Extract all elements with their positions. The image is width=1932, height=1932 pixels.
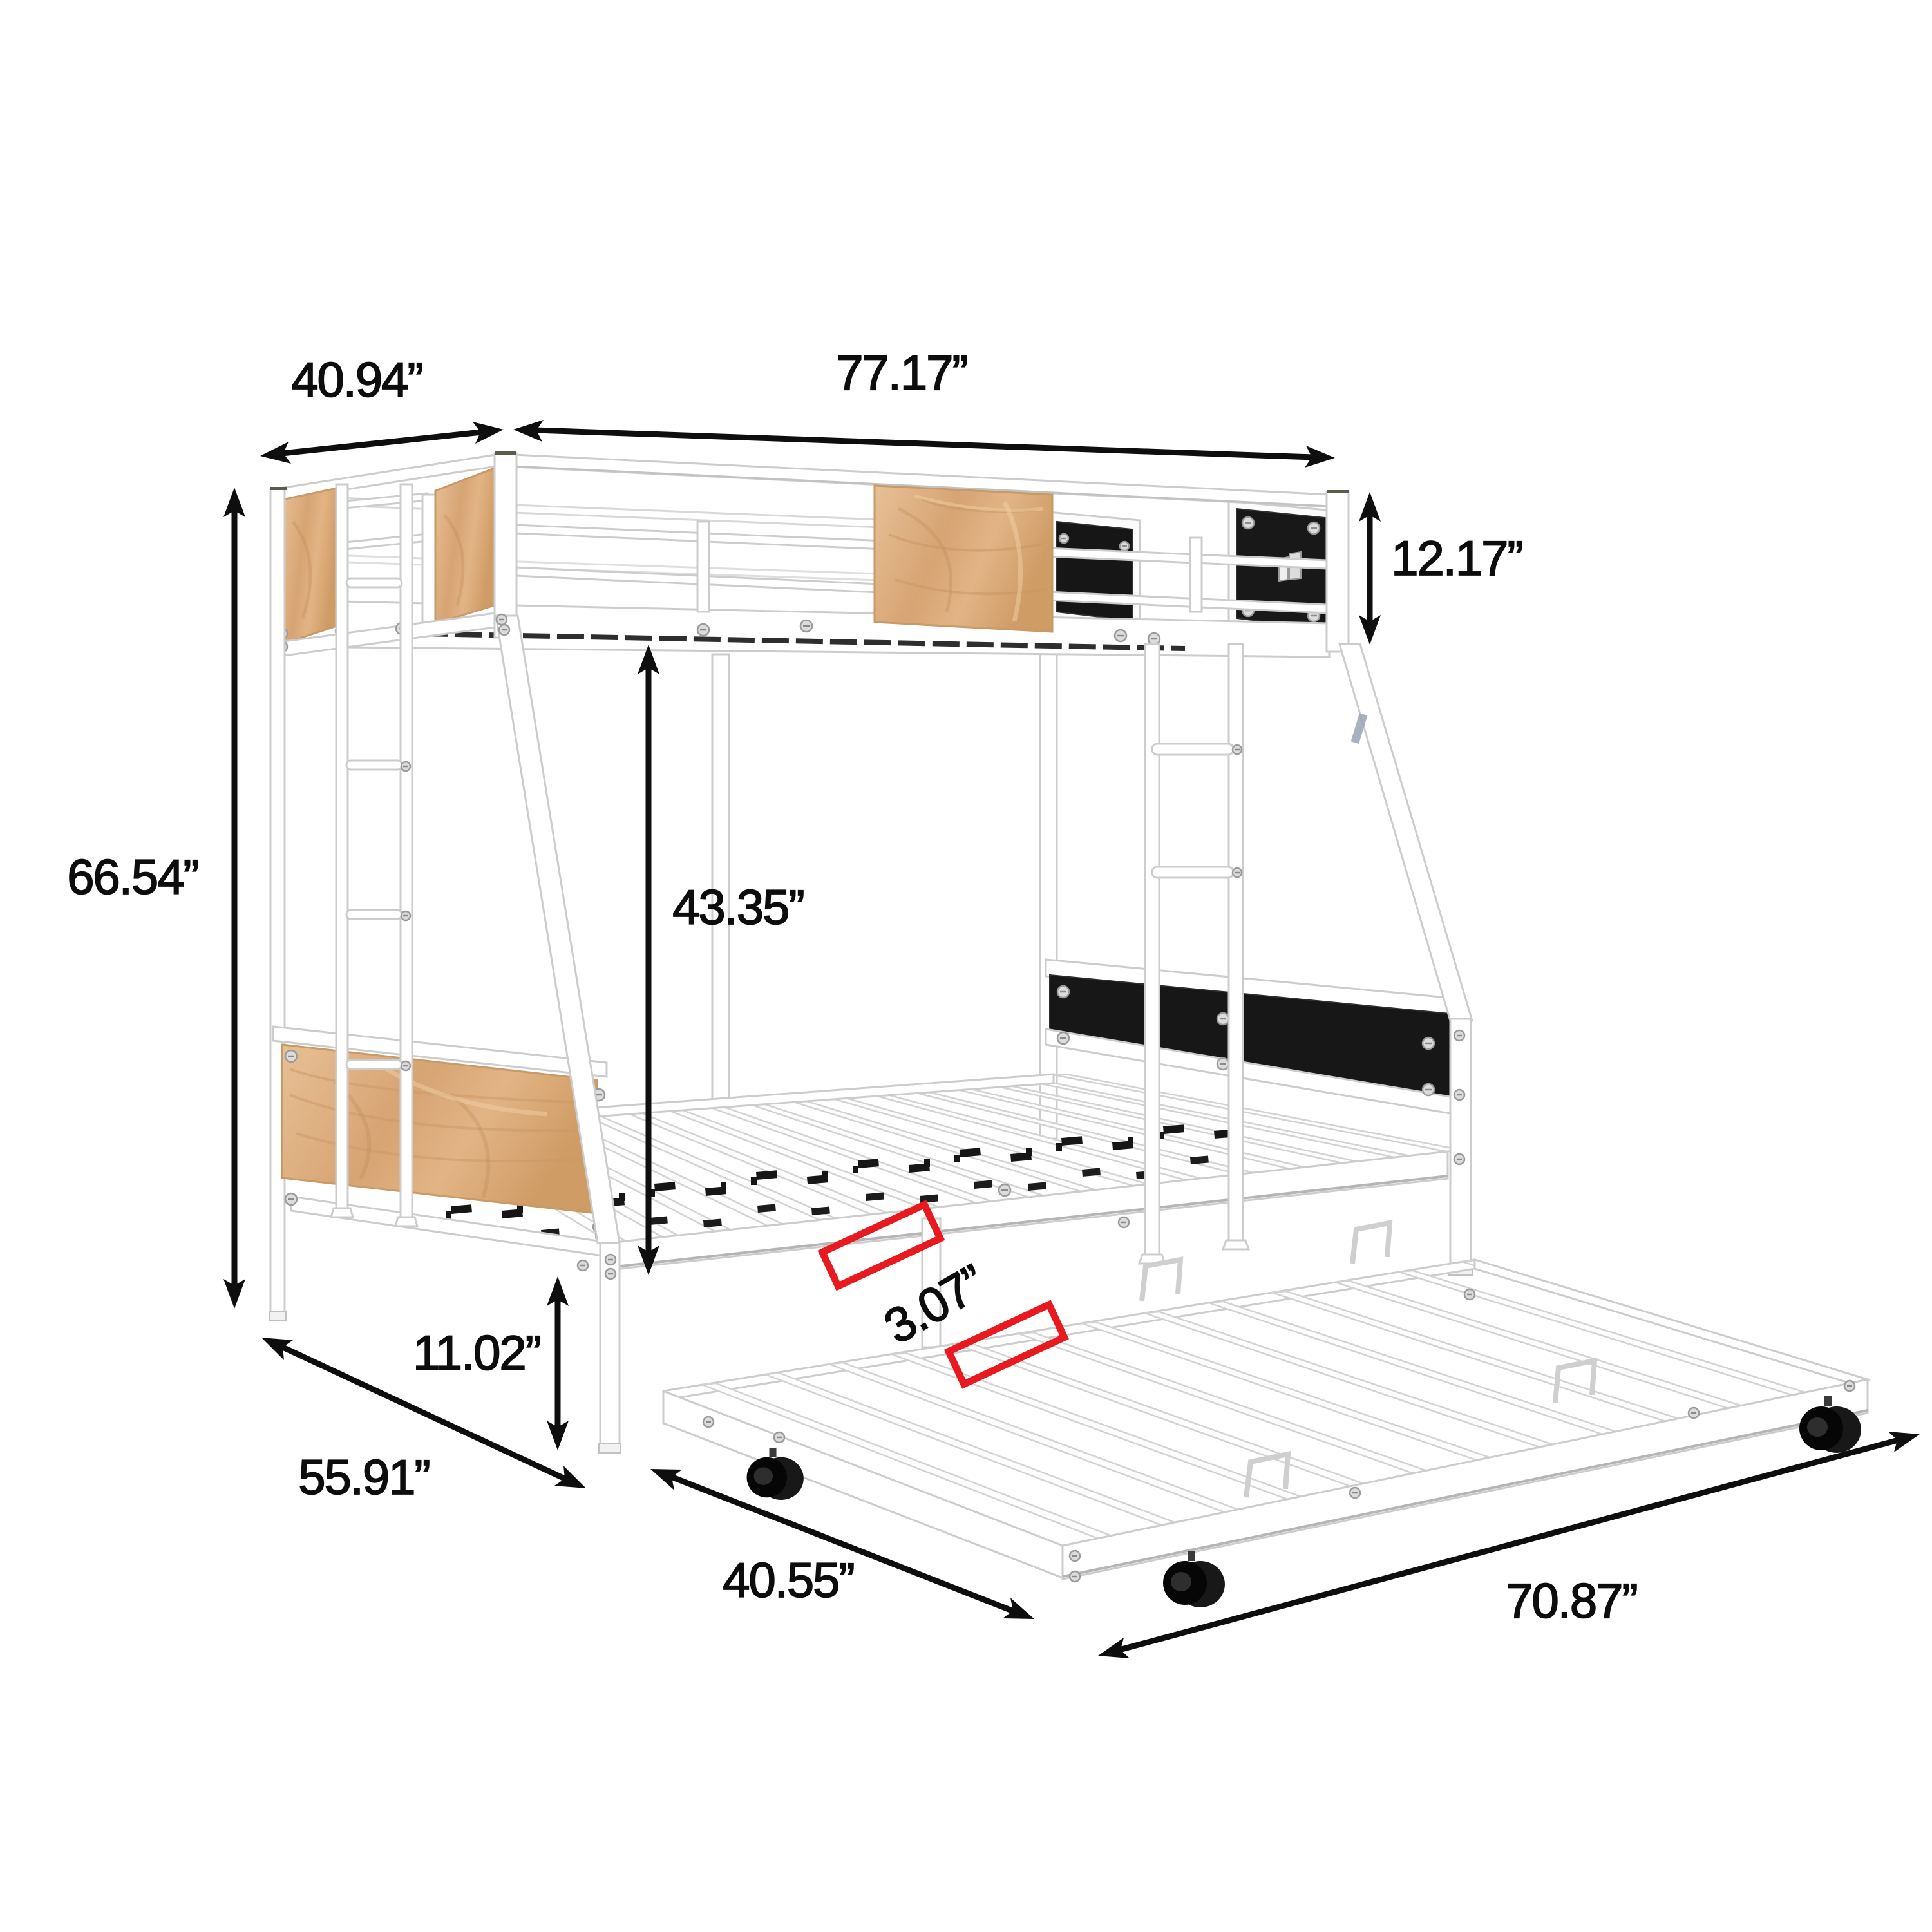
svg-text:12.17”: 12.17” — [1391, 531, 1522, 586]
svg-text:55.91”: 55.91” — [298, 1450, 430, 1505]
svg-text:11.02”: 11.02” — [413, 1326, 540, 1381]
svg-text:40.55”: 40.55” — [723, 1553, 854, 1608]
svg-text:40.94”: 40.94” — [291, 353, 422, 408]
svg-text:77.17”: 77.17” — [836, 346, 967, 401]
svg-text:70.87”: 70.87” — [1506, 1574, 1637, 1629]
svg-text:43.35”: 43.35” — [672, 880, 804, 935]
svg-text:66.54”: 66.54” — [67, 850, 198, 905]
